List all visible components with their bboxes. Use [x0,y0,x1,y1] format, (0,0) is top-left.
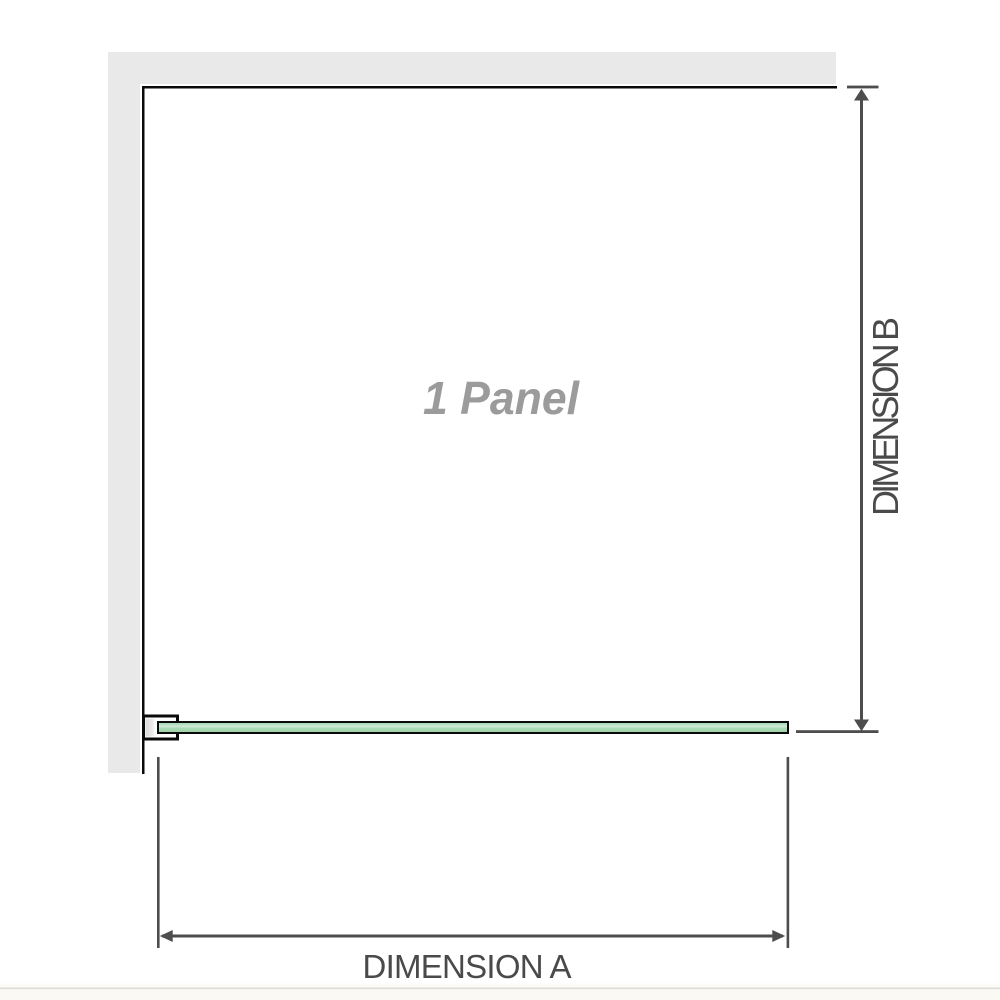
svg-text:1 Panel: 1 Panel [423,372,580,424]
svg-text:DIMENSION A: DIMENSION A [363,948,572,985]
svg-text:DIMENSION B: DIMENSION B [865,317,906,516]
